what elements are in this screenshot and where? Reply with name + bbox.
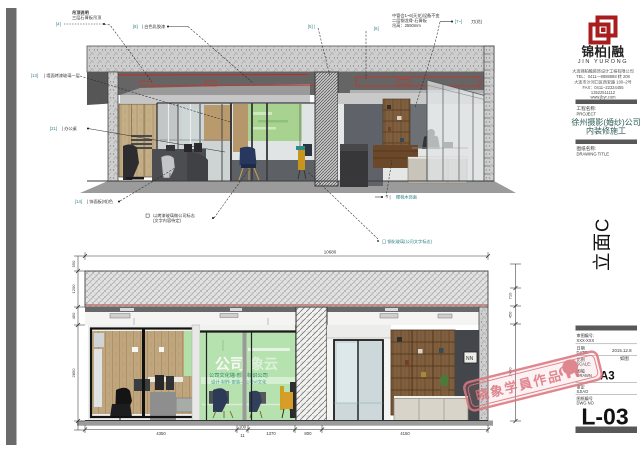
svg-text:内装修施工: 内装修施工 [586, 126, 626, 136]
svg-text:[21]: [21] [50, 126, 57, 131]
svg-text:吊高：2550mm: 吊高：2550mm [392, 22, 421, 29]
svg-text:公司: 公司 [215, 356, 245, 373]
svg-text:7 |: 7 | [386, 195, 391, 200]
svg-text:PROJECT: PROJECT [577, 112, 597, 117]
svg-text:[13]: [13] [31, 73, 38, 78]
svg-text:NN: NN [466, 356, 474, 362]
svg-text:10680: 10680 [324, 250, 337, 255]
svg-text:4350: 4350 [156, 431, 166, 436]
svg-text:大连锦柏融装饰设计工程有限公司: 大连锦柏融装饰设计工程有限公司 [572, 68, 633, 74]
svg-text:(文字内容待定): (文字内容待定) [153, 217, 182, 224]
svg-text:710: 710 [508, 292, 513, 299]
svg-text:2015.12.8: 2015.12.8 [612, 348, 632, 353]
svg-text:立面C: 立面C [592, 218, 613, 271]
svg-text:| 办公桌: | 办公桌 [62, 125, 78, 132]
svg-text:800: 800 [304, 431, 312, 436]
svg-text:[5] |: [5] | [308, 24, 315, 29]
svg-text:| 饰面板(啡)色: | 饰面板(啡)色 [87, 198, 114, 205]
svg-text:550: 550 [71, 260, 76, 267]
svg-text:樱桃木饰面: 樱桃木饰面 [396, 194, 417, 201]
svg-text:[4]: [4] [56, 22, 61, 27]
svg-text:TEL：0411—8888888 转 208: TEL：0411—8888888 转 208 [576, 73, 630, 79]
svg-text:如图: 如图 [620, 355, 629, 362]
svg-text:设计·制作·安装—公司VI文化: 设计·制作·安装—公司VI文化 [211, 379, 267, 386]
svg-text:SJIAO: SJIAO [577, 389, 589, 394]
svg-text:DRAWING TITLE: DRAWING TITLE [577, 152, 610, 157]
svg-text:4150: 4150 [400, 431, 410, 436]
svg-text:[8]: [8] [133, 24, 138, 29]
svg-text:象云: 象云 [250, 356, 278, 372]
svg-text:| 白色乳胶漆: | 白色乳胶漆 [142, 23, 165, 30]
svg-text:1370: 1370 [266, 431, 276, 436]
svg-text:XXX-XXX: XXX-XXX [577, 338, 595, 343]
svg-text:大连市沙河口区西安路 100–2号: 大连市沙河口区西安路 100–2号 [574, 79, 632, 85]
svg-text:450: 450 [71, 312, 76, 319]
svg-text:100: 100 [239, 425, 247, 430]
svg-text:JIN YURONG: JIN YURONG [578, 59, 628, 65]
svg-text:450: 450 [508, 311, 513, 318]
svg-text:2850: 2850 [71, 368, 76, 378]
svg-text:1200: 1200 [71, 284, 76, 294]
svg-text:[6]: [6] [374, 26, 379, 31]
svg-text:三层石膏板吊顶: 三层石膏板吊顶 [72, 14, 102, 21]
svg-text:11: 11 [240, 433, 245, 438]
svg-text:L-03: L-03 [581, 404, 628, 430]
svg-text:[14]: [14] [75, 199, 82, 204]
svg-text:[7~]: [7~] [455, 19, 462, 24]
svg-text:| 墙面烤漆玻璃一层: | 墙面烤漆玻璃一层 [44, 72, 80, 79]
svg-text:徐州摄影(婚纱)公司: 徐州摄影(婚纱)公司 [571, 117, 640, 127]
svg-text:www.jbyr.com: www.jbyr.com [590, 95, 616, 100]
svg-text:囗 钢化玻璃(公司文字标志): 囗 钢化玻璃(公司文字标志) [382, 238, 433, 245]
svg-text:刀(花): 刀(花) [471, 18, 483, 25]
svg-text:公司文化墙·形象标识公司: 公司文化墙·形象标识公司 [209, 371, 268, 379]
svg-text:锦柏|融: 锦柏|融 [582, 44, 625, 59]
